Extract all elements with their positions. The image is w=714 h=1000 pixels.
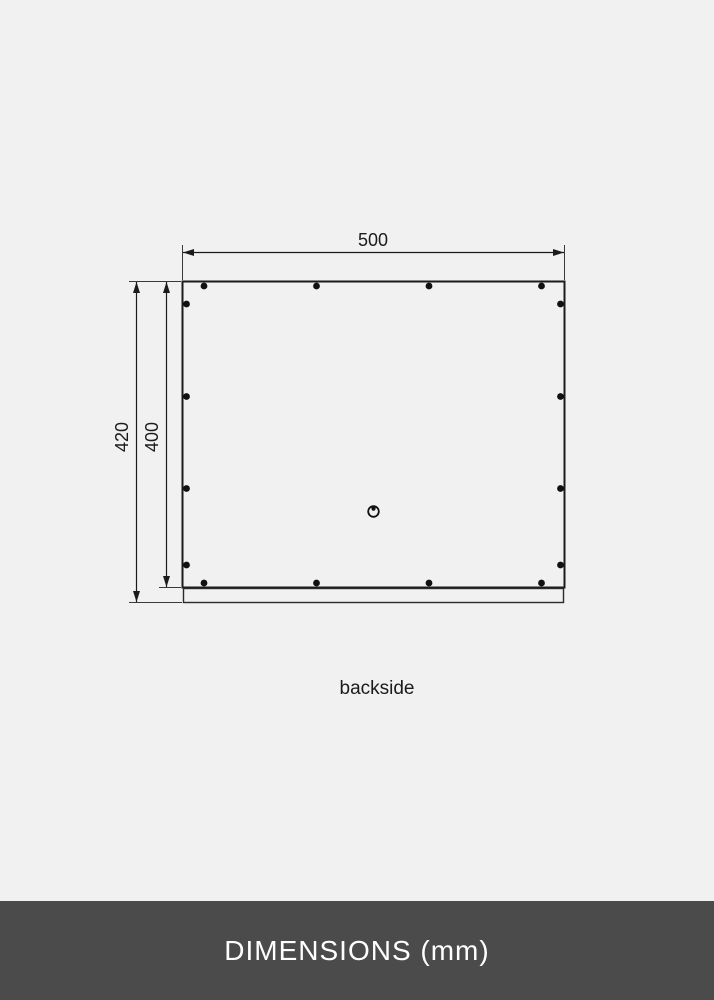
fastener-dot xyxy=(201,580,208,587)
fastener-dot xyxy=(557,393,564,400)
fastener-dot xyxy=(557,301,564,308)
fastener-dot xyxy=(557,562,564,569)
fastener-dot xyxy=(313,283,320,290)
fastener-dot xyxy=(426,283,433,290)
fastener-dot xyxy=(538,283,545,290)
inner-height-dimension: 400 xyxy=(142,282,181,588)
width-dimension-label: 500 xyxy=(358,230,388,250)
view-label: backside xyxy=(340,678,415,699)
fastener-dot xyxy=(557,485,564,492)
hanging-rail xyxy=(184,589,564,603)
fastener-dot xyxy=(313,580,320,587)
footer-bar: DIMENSIONS (mm) xyxy=(0,901,714,1000)
fastener-dot xyxy=(183,562,190,569)
hanging-hole-icon xyxy=(368,506,379,517)
fastener-dot xyxy=(538,580,545,587)
fastener-dot xyxy=(201,283,208,290)
fastener-dot xyxy=(183,485,190,492)
fastener-dot xyxy=(426,580,433,587)
dimension-diagram: 500 420 400 backside xyxy=(0,0,714,901)
width-dimension: 500 xyxy=(183,230,565,280)
footer-title: DIMENSIONS (mm) xyxy=(224,935,489,967)
fastener-dot xyxy=(183,301,190,308)
frame-outline xyxy=(183,282,565,588)
fastener-dot xyxy=(183,393,190,400)
inner-height-dimension-label: 400 xyxy=(142,422,162,452)
page: 500 420 400 backside DIMENSIONS (mm) xyxy=(0,0,714,1000)
outer-height-dimension-label: 420 xyxy=(112,422,132,452)
